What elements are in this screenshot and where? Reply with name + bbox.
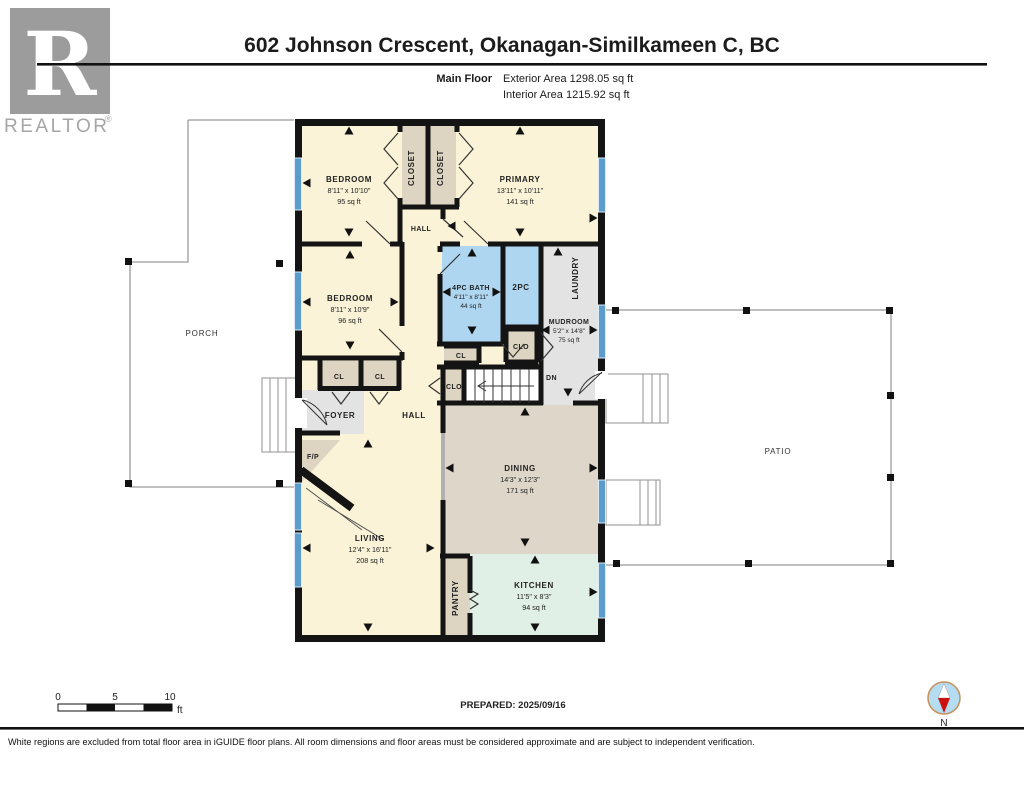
porch-posts bbox=[125, 258, 283, 487]
hall-upper-label: HALL bbox=[411, 226, 432, 233]
bedroom1-label: BEDROOM bbox=[326, 175, 372, 184]
porch-steps bbox=[262, 378, 296, 452]
realtor-logo-text: REALTOR bbox=[4, 116, 110, 137]
pantry-label: PANTRY bbox=[451, 580, 460, 616]
page-title: 602 Johnson Crescent, Okanagan-Similkame… bbox=[244, 34, 780, 57]
mudroom-area: 75 sq ft bbox=[558, 337, 580, 344]
scale-tick-10: 10 bbox=[164, 692, 176, 703]
clo-mudroom-label: CLO bbox=[513, 344, 529, 351]
foyer-label: FOYER bbox=[325, 411, 356, 420]
kitchen-dims: 11'5" x 8'3" bbox=[517, 592, 552, 601]
scale-tick-5: 5 bbox=[112, 692, 118, 703]
exterior-area: Exterior Area 1298.05 sq ft bbox=[503, 73, 633, 85]
clo-stairs-label: CLO bbox=[446, 384, 462, 391]
primary-area: 141 sq ft bbox=[506, 197, 534, 206]
footer-divider bbox=[0, 727, 1024, 730]
closet1-label: CLOSET bbox=[407, 150, 416, 186]
patio-posts bbox=[612, 307, 894, 567]
kitchen-label: KITCHEN bbox=[514, 581, 554, 590]
closet2-label: CLOSET bbox=[436, 150, 445, 186]
dining-dims: 14'3" x 12'3" bbox=[500, 475, 540, 484]
bedroom1-area: 95 sq ft bbox=[337, 197, 361, 206]
mudroom-label: MUDROOM bbox=[549, 319, 590, 326]
laundry-label: LAUNDRY bbox=[571, 256, 580, 299]
floor-label: Main Floor bbox=[436, 73, 492, 85]
compass-icon: N bbox=[928, 682, 960, 729]
bedroom1-dims: 8'11" x 10'10" bbox=[328, 186, 371, 195]
interior-area: Interior Area 1215.92 sq ft bbox=[503, 89, 630, 101]
title-underline bbox=[37, 63, 987, 66]
fireplace-label: F/P bbox=[307, 454, 319, 461]
patio-steps-upper bbox=[606, 374, 668, 423]
footer-disclaimer: White regions are excluded from total fl… bbox=[8, 737, 755, 747]
primary-label: PRIMARY bbox=[500, 175, 541, 184]
bath-dims: 4'11" x 8'11" bbox=[454, 294, 489, 301]
hall-main-label: HALL bbox=[402, 411, 426, 420]
bedroom2-area: 96 sq ft bbox=[338, 316, 362, 325]
floorplan-canvas: R REALTOR ® 602 Johnson Crescent, Okanag… bbox=[0, 0, 1024, 791]
dn-label: DN bbox=[546, 375, 557, 382]
dining-label: DINING bbox=[504, 464, 536, 473]
cl1-label: CL bbox=[334, 374, 344, 381]
mudroom-dims: 5'2" x 14'8" bbox=[553, 328, 586, 335]
scale-bar: 0 5 10 ft bbox=[55, 692, 183, 716]
bedroom2-dims: 8'11" x 10'9" bbox=[331, 305, 370, 314]
kitchen-area: 94 sq ft bbox=[522, 603, 546, 612]
wc-label: 2PC bbox=[512, 283, 529, 292]
patio-steps-lower bbox=[606, 480, 660, 525]
primary-dims: 13'11" x 10'11" bbox=[497, 186, 544, 195]
patio-outline bbox=[604, 310, 891, 565]
living-label: LIVING bbox=[355, 534, 385, 543]
living-dims: 12'4" x 16'11" bbox=[349, 545, 392, 554]
realtor-logo: R REALTOR ® bbox=[4, 8, 112, 137]
porch-label: PORCH bbox=[186, 329, 219, 338]
cl-bath-label: CL bbox=[456, 353, 466, 360]
bath-area: 44 sq ft bbox=[460, 303, 482, 310]
bath-label: 4PC BATH bbox=[452, 285, 490, 292]
cl2-label: CL bbox=[375, 374, 385, 381]
prepared-date: PREPARED: 2025/09/16 bbox=[460, 700, 565, 711]
patio-label: PATIO bbox=[765, 447, 792, 456]
scale-tick-0: 0 bbox=[55, 692, 61, 703]
floorplan-page: R REALTOR ® 602 Johnson Crescent, Okanag… bbox=[0, 0, 1024, 791]
scale-unit: ft bbox=[177, 705, 183, 716]
registered-mark: ® bbox=[105, 114, 112, 124]
bedroom2-label: BEDROOM bbox=[327, 294, 373, 303]
dining-area: 171 sq ft bbox=[506, 486, 534, 495]
living-area: 208 sq ft bbox=[356, 556, 384, 565]
